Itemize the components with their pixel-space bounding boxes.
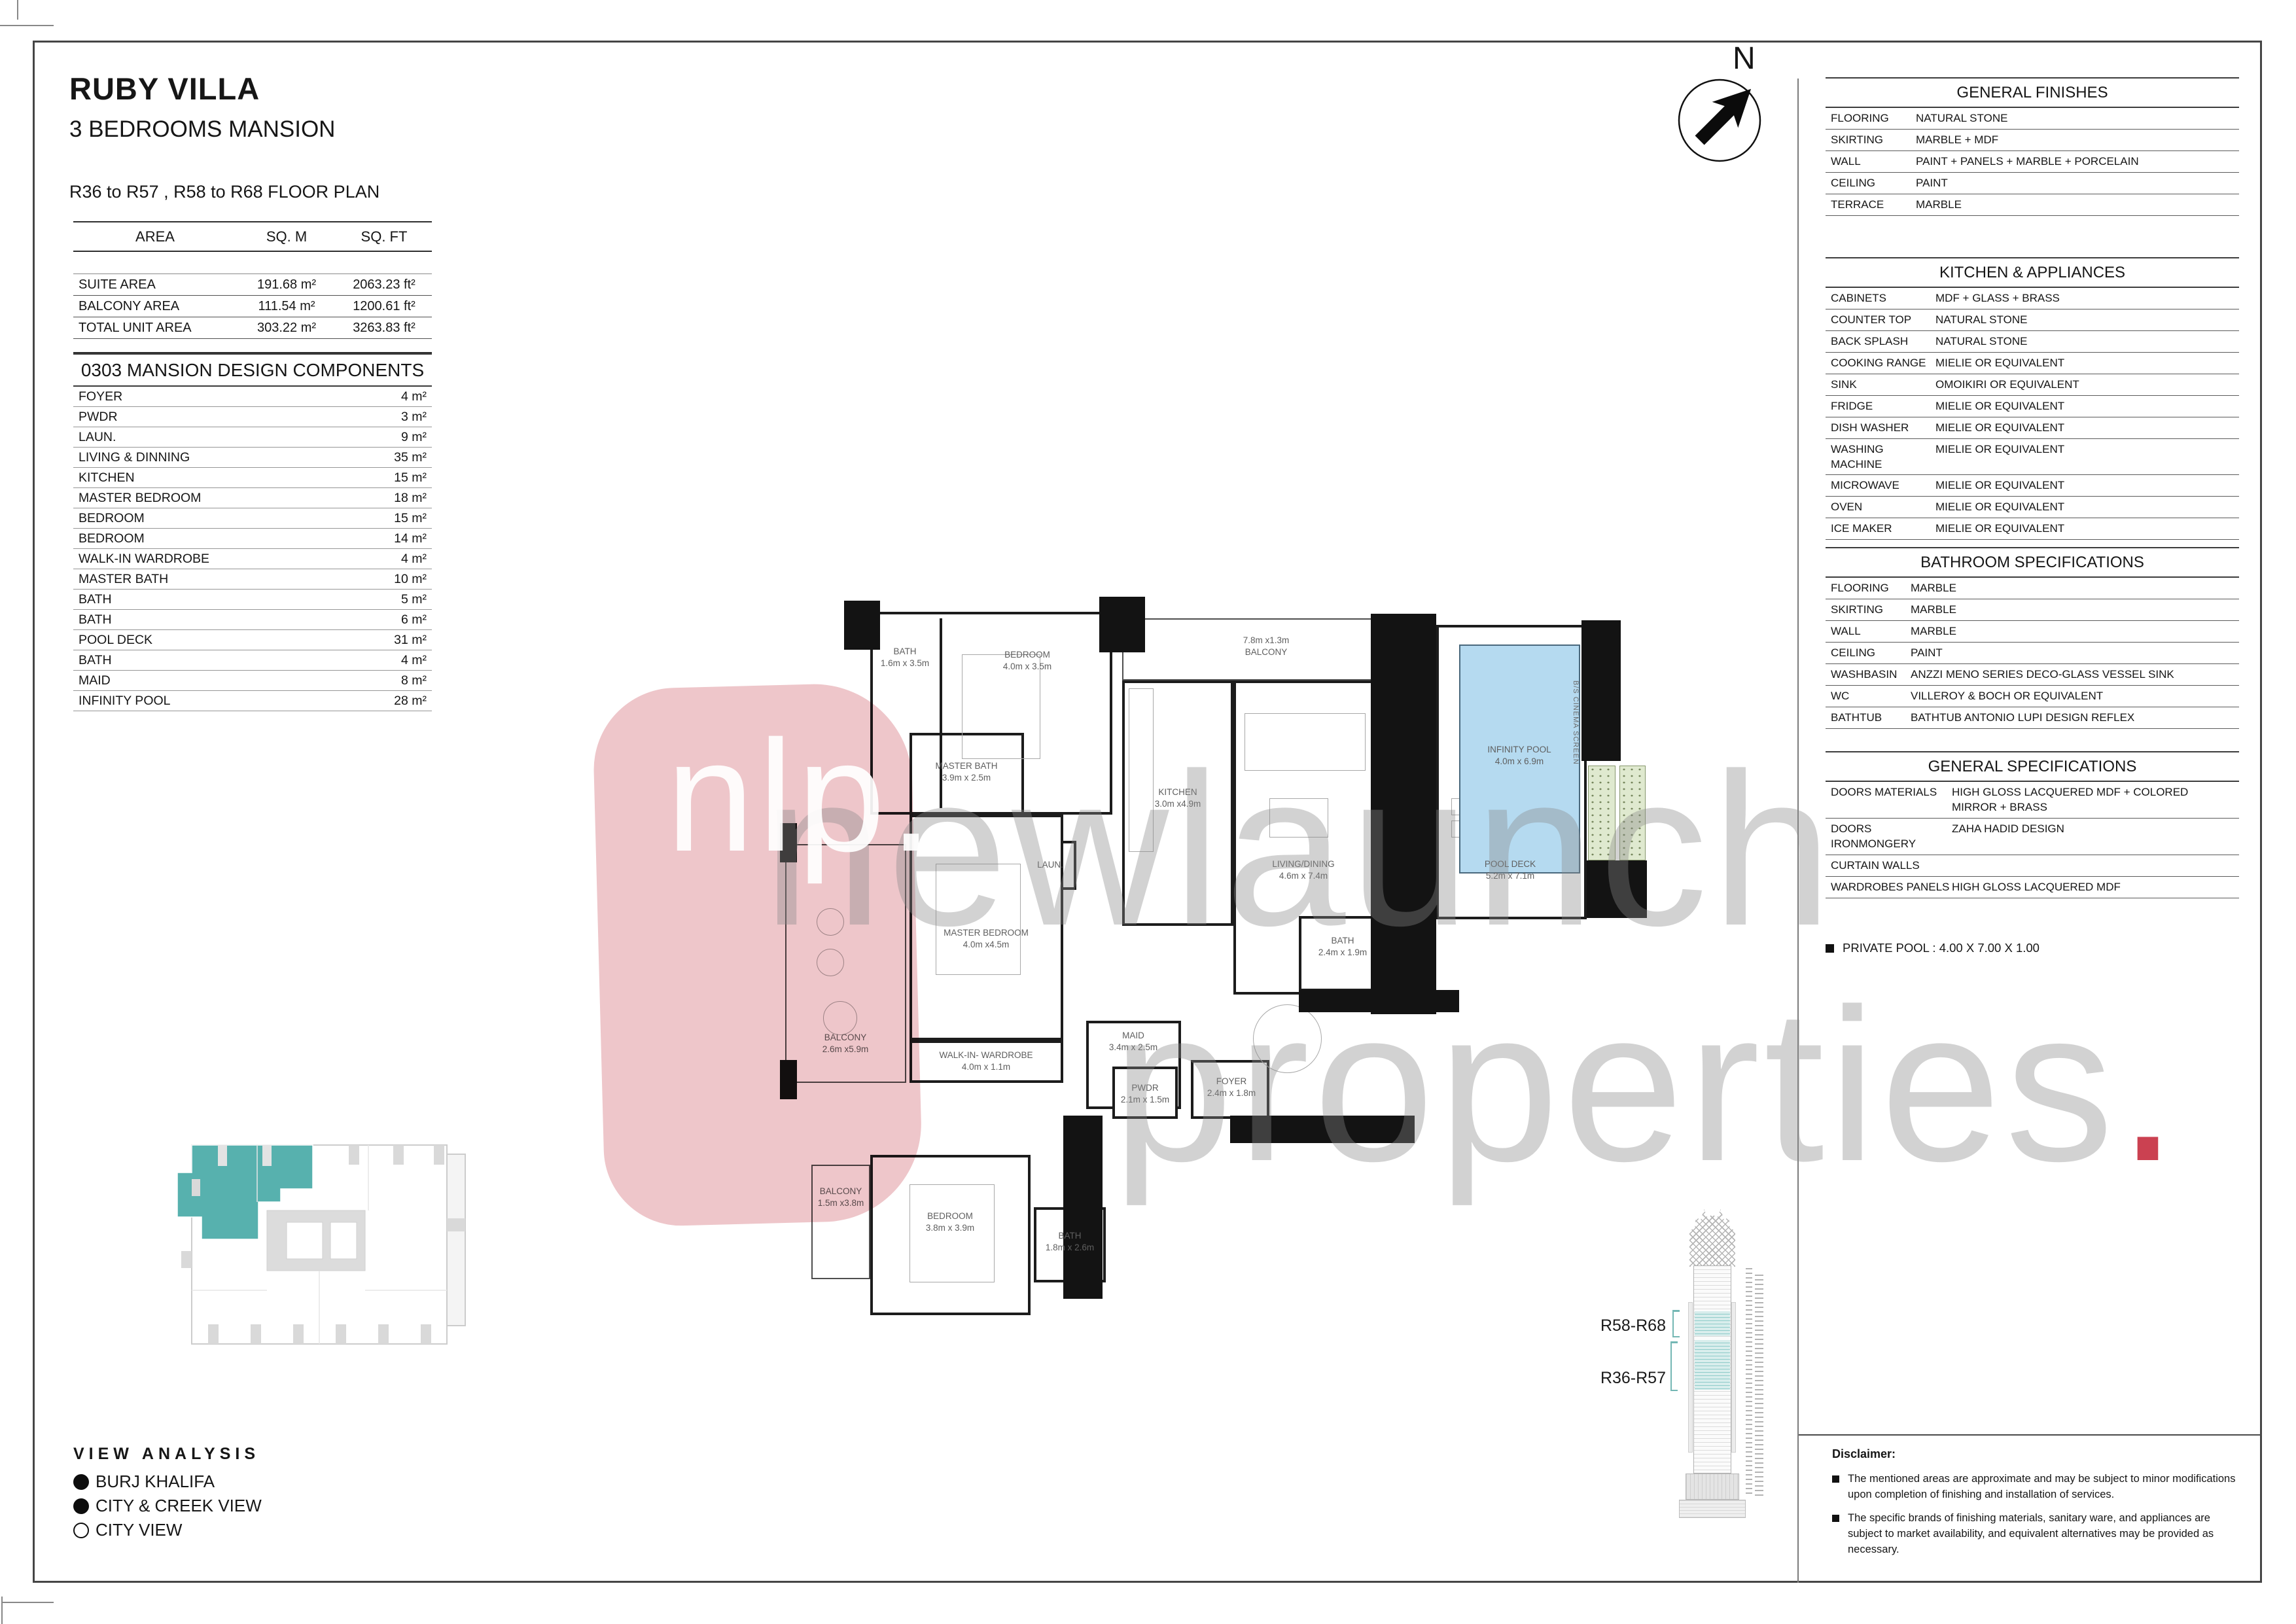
table-cell: WASHBASIN [1831, 667, 1911, 682]
table-cell: 3 m² [401, 410, 427, 425]
table-cell: LIVING & DINNING [79, 450, 394, 465]
disclaimer-text: The mentioned areas are approximate and … [1848, 1472, 2244, 1503]
components-table-row: FOYER4 m² [73, 387, 432, 407]
spec-table-row: WALLMARBLE [1826, 621, 2239, 643]
view-analysis-items: BURJ KHALIFACITY & CREEK VIEWCITY VIEW [73, 1472, 262, 1540]
components-table: 0303 MANSION DESIGN COMPONENTS FOYER4 m²… [73, 353, 432, 711]
table-cell: FLOORING [1831, 111, 1916, 126]
table-cell: WALL [1831, 624, 1911, 639]
table-cell: 191.68 m² [237, 277, 336, 292]
room-label-bedroom-bottom: BEDROOM3.8m x 3.9m [926, 1210, 974, 1234]
table-cell: NATURAL STONE [1935, 313, 2239, 328]
table-cell: CABINETS [1831, 291, 1935, 306]
table-cell: BEDROOM [79, 531, 394, 546]
tower-floor-index-column [1746, 1268, 1752, 1497]
table-cell: MIELIE OR EQUIVALENT [1935, 399, 2239, 414]
table-cell: CURTAIN WALLS [1831, 858, 1952, 874]
kitchen-appliances-table: KITCHEN & APPLIANCESCABINETSMDF + GLASS … [1826, 257, 2239, 540]
area-table-body: SUITE AREA191.68 m²2063.23 ft²BALCONY AR… [73, 274, 432, 339]
table-cell: MARBLE [1911, 581, 2239, 596]
disclaimer-item: The mentioned areas are approximate and … [1832, 1472, 2244, 1503]
table-cell: MARBLE [1911, 603, 2239, 618]
components-table-row: MASTER BATH10 m² [73, 569, 432, 590]
general-specifications-table: GENERAL SPECIFICATIONSDOORS MATERIALSHIG… [1826, 751, 2239, 898]
tower-wing [1688, 1302, 1693, 1453]
view-analysis: VIEW ANALYSIS BURJ KHALIFACITY & CREEK V… [73, 1445, 262, 1544]
spec-table-title: BATHROOM SPECIFICATIONS [1826, 547, 2239, 578]
table-cell: MDF + GLASS + BRASS [1935, 291, 2239, 306]
components-table-row: INFINITY POOL28 m² [73, 691, 432, 711]
spec-table-row: WASHBASINANZZI MENO SERIES DECO-GLASS VE… [1826, 664, 2239, 686]
open-circle-icon [73, 1523, 89, 1538]
wall-block [1063, 1116, 1103, 1299]
table-cell: ZAHA HADID DESIGN [1952, 822, 2239, 837]
table-cell: 5 m² [401, 592, 427, 607]
spec-table-row: OVENMIELIE OR EQUIVALENT [1826, 497, 2239, 518]
table-cell: MARBLE + MDF [1916, 133, 2239, 148]
spec-table-row: FRIDGEMIELIE OR EQUIVALENT [1826, 396, 2239, 417]
components-table-row: MASTER BEDROOM18 m² [73, 488, 432, 508]
table-cell: BATHTUB ANTONIO LUPI DESIGN REFLEX [1911, 711, 2239, 726]
view-analysis-item: CITY VIEW [73, 1520, 262, 1540]
components-table-row: BATH4 m² [73, 650, 432, 671]
area-table: AREA SQ. M SQ. FT SUITE AREA191.68 m²206… [73, 221, 432, 353]
spec-table-row: CABINETSMDF + GLASS + BRASS [1826, 288, 2239, 309]
disclaimer-title: Disclaimer: [1832, 1447, 2244, 1461]
highlight-band-upper [1695, 1311, 1730, 1336]
table-cell: PAINT [1911, 646, 2239, 661]
table-cell: COUNTER TOP [1831, 313, 1935, 328]
square-bullet-icon [1832, 1515, 1839, 1522]
table-cell: 31 m² [394, 633, 427, 648]
components-table-row: MAID8 m² [73, 671, 432, 691]
room-label-bath-top: BATH1.6m x 3.5m [881, 646, 929, 669]
spec-table-title: GENERAL SPECIFICATIONS [1826, 751, 2239, 782]
spec-table-row: WALLPAINT + PANELS + MARBLE + PORCELAIN [1826, 151, 2239, 173]
components-table-row: KITCHEN15 m² [73, 468, 432, 488]
spec-table-row: TERRACEMARBLE [1826, 194, 2239, 216]
table-cell: 8 m² [401, 673, 427, 688]
spec-table-row: DOORS MATERIALSHIGH GLOSS LACQUERED MDF … [1826, 782, 2239, 819]
table-cell: NATURAL STONE [1916, 111, 2239, 126]
table-cell: MIELIE OR EQUIVALENT [1935, 521, 2239, 537]
crop-mark [1, 1602, 54, 1603]
table-cell: DISH WASHER [1831, 421, 1935, 436]
table-cell: SINK [1831, 378, 1935, 393]
spec-table-row: FLOORINGNATURAL STONE [1826, 108, 2239, 130]
spec-table-row: WCVILLEROY & BOCH OR EQUIVALENT [1826, 686, 2239, 707]
north-arrow-icon [1676, 73, 1768, 165]
disclaimer-items: The mentioned areas are approximate and … [1832, 1472, 2244, 1558]
spec-table-row: CEILINGPAINT [1826, 643, 2239, 664]
tower-podium [1679, 1500, 1746, 1518]
table-cell: WASHING MACHINE [1831, 442, 1935, 472]
components-table-row: BATH5 m² [73, 590, 432, 610]
col-sqft: SQ. FT [336, 228, 432, 245]
components-table-row: LAUN.9 m² [73, 427, 432, 448]
components-table-row: PWDR3 m² [73, 407, 432, 427]
page-title: RUBY VILLA [69, 71, 260, 107]
table-cell: OVEN [1831, 500, 1935, 515]
components-table-row: BEDROOM15 m² [73, 508, 432, 529]
table-cell: 3263.83 ft² [336, 321, 432, 336]
table-cell: BALCONY AREA [73, 299, 237, 314]
table-cell: PWDR [79, 410, 401, 425]
spec-table-row: SINKOMOIKIRI OR EQUIVALENT [1826, 374, 2239, 396]
col-sqm: SQ. M [237, 228, 336, 245]
table-cell: ANZZI MENO SERIES DECO-GLASS VESSEL SINK [1911, 667, 2239, 682]
table-cell: 35 m² [394, 450, 427, 465]
tower-base [1686, 1474, 1739, 1500]
spec-table-row: ICE MAKERMIELIE OR EQUIVALENT [1826, 518, 2239, 540]
table-cell: 4 m² [401, 552, 427, 567]
components-table-row: BATH6 m² [73, 610, 432, 630]
table-cell: SKIRTING [1831, 603, 1911, 618]
filled-circle-icon [73, 1498, 89, 1514]
table-cell: CEILING [1831, 646, 1911, 661]
table-cell: MIELIE OR EQUIVALENT [1935, 356, 2239, 371]
table-cell: BATH [79, 612, 401, 627]
components-table-row: WALK-IN WARDROBE4 m² [73, 549, 432, 569]
table-cell: MIELIE OR EQUIVALENT [1935, 500, 2239, 515]
area-table-row: SUITE AREA191.68 m²2063.23 ft² [73, 274, 432, 296]
table-cell: TOTAL UNIT AREA [73, 321, 237, 336]
watermark-line2: properties. [1112, 961, 2182, 1210]
wall-block [1099, 597, 1145, 652]
table-cell: PAINT + PANELS + MARBLE + PORCELAIN [1916, 154, 2239, 169]
table-cell: MIELIE OR EQUIVALENT [1935, 421, 2239, 436]
floor-range-line: R36 to R57 , R58 to R68 FLOOR PLAN [69, 182, 380, 202]
crop-mark [0, 25, 54, 26]
watermark-logo: nlp. [666, 705, 937, 887]
spec-table-row: SKIRTINGMARBLE [1826, 599, 2239, 621]
spec-table-title: KITCHEN & APPLIANCES [1826, 257, 2239, 288]
table-cell: COOKING RANGE [1831, 356, 1935, 371]
view-analysis-item: BURJ KHALIFA [73, 1472, 262, 1492]
bracket-lower [1670, 1341, 1672, 1391]
disclaimer: Disclaimer: The mentioned areas are appr… [1832, 1447, 2244, 1566]
col-area: AREA [73, 228, 237, 245]
table-cell: WALL [1831, 154, 1916, 169]
highlight-band-lower [1695, 1340, 1730, 1390]
floor-plan-brochure-page: { "header": { "title": "RUBY VILLA", "su… [0, 0, 2296, 1624]
table-cell: KITCHEN [79, 470, 394, 485]
spec-table-row: CEILINGPAINT [1826, 173, 2239, 194]
spec-table-row: MICROWAVEMIELIE OR EQUIVALENT [1826, 475, 2239, 497]
view-analysis-label: CITY & CREEK VIEW [96, 1496, 262, 1516]
spec-table-row: COUNTER TOPNATURAL STONE [1826, 309, 2239, 331]
table-cell: FRIDGE [1831, 399, 1935, 414]
table-cell: MAID [79, 673, 401, 688]
table-cell: 4 m² [401, 389, 427, 404]
table-cell: TERRACE [1831, 198, 1916, 213]
area-table-spacer [73, 252, 432, 274]
table-cell: 15 m² [394, 511, 427, 526]
components-table-row: POOL DECK31 m² [73, 630, 432, 650]
spec-table-row: CURTAIN WALLS [1826, 855, 2239, 877]
table-cell: MARBLE [1916, 198, 2239, 213]
spec-table-row: COOKING RANGEMIELIE OR EQUIVALENT [1826, 353, 2239, 374]
table-cell: INFINITY POOL [79, 694, 394, 709]
table-cell: MASTER BATH [79, 572, 394, 587]
table-cell: BEDROOM [79, 511, 394, 526]
tower-label-lower: R36-R57 [1594, 1369, 1666, 1388]
table-cell: 2063.23 ft² [336, 277, 432, 292]
spec-table-row: WARDROBES PANELSHIGH GLOSS LACQUERED MDF [1826, 877, 2239, 898]
components-table-row: BEDROOM14 m² [73, 529, 432, 549]
room-label-wardrobe: WALK-IN- WARDROBE4.0m x 1.1m [939, 1050, 1033, 1073]
view-analysis-label: CITY VIEW [96, 1520, 262, 1540]
spec-table-row: BACK SPLASHNATURAL STONE [1826, 331, 2239, 353]
spec-table-row: BATHTUBBATHTUB ANTONIO LUPI DESIGN REFLE… [1826, 707, 2239, 729]
table-cell: 6 m² [401, 612, 427, 627]
table-cell: 111.54 m² [237, 299, 336, 314]
table-cell: ICE MAKER [1831, 521, 1935, 537]
private-pool-note: PRIVATE POOL : 4.00 X 7.00 X 1.00 [1826, 941, 2166, 955]
table-cell: POOL DECK [79, 633, 394, 648]
components-title: 0303 MANSION DESIGN COMPONENTS [73, 355, 432, 387]
table-cell: HIGH GLOSS LACQUERED MDF [1952, 880, 2239, 895]
general-finishes-table: GENERAL FINISHESFLOORINGNATURAL STONESKI… [1826, 77, 2239, 216]
table-cell: 10 m² [394, 572, 427, 587]
spec-table-row: DISH WASHERMIELIE OR EQUIVALENT [1826, 417, 2239, 439]
table-cell: FOYER [79, 389, 401, 404]
bracket-upper [1672, 1310, 1674, 1337]
room-label-balcony-top: 7.8m x1.3mBALCONY [1243, 635, 1290, 658]
table-cell: MIELIE OR EQUIVALENT [1935, 442, 2239, 457]
spec-table-title: GENERAL FINISHES [1826, 77, 2239, 108]
table-cell: MICROWAVE [1831, 478, 1935, 493]
table-cell: NATURAL STONE [1935, 334, 2239, 349]
table-cell: WC [1831, 689, 1911, 704]
tower-label-upper: R58-R68 [1594, 1316, 1666, 1335]
keyplan [152, 1140, 503, 1382]
table-cell: 15 m² [394, 470, 427, 485]
area-table-row: TOTAL UNIT AREA303.22 m²3263.83 ft² [73, 317, 432, 339]
disclaimer-text: The specific brands of finishing materia… [1848, 1511, 2244, 1558]
view-analysis-label: BURJ KHALIFA [96, 1472, 262, 1492]
table-cell: BACK SPLASH [1831, 334, 1935, 349]
table-cell: MARBLE [1911, 624, 2239, 639]
table-cell: WARDROBES PANELS [1831, 880, 1952, 895]
tower-floor-index-column [1755, 1275, 1763, 1497]
table-cell: BATH [79, 653, 401, 668]
crop-mark [1, 1597, 3, 1624]
table-cell: 1200.61 ft² [336, 299, 432, 314]
table-cell: OMOIKIRI OR EQUIVALENT [1935, 378, 2239, 393]
spec-table-row: DOORS IRONMONGERYZAHA HADID DESIGN [1826, 819, 2239, 855]
bathroom-specifications-table: BATHROOM SPECIFICATIONSFLOORINGMARBLESKI… [1826, 547, 2239, 729]
table-cell: LAUN. [79, 430, 401, 445]
table-cell: SKIRTING [1831, 133, 1916, 148]
table-cell: 9 m² [401, 430, 427, 445]
table-cell: WALK-IN WARDROBE [79, 552, 401, 567]
table-cell: MASTER BEDROOM [79, 491, 394, 506]
table-cell: VILLEROY & BOCH OR EQUIVALENT [1911, 689, 2239, 704]
filled-circle-icon [73, 1474, 89, 1490]
disclaimer-item: The specific brands of finishing materia… [1832, 1511, 2244, 1558]
table-cell: DOORS IRONMONGERY [1831, 822, 1952, 852]
table-cell: HIGH GLOSS LACQUERED MDF + COLORED MIRRO… [1952, 785, 2239, 815]
private-pool-note-text: PRIVATE POOL : 4.00 X 7.00 X 1.00 [1843, 941, 2166, 955]
table-cell: MIELIE OR EQUIVALENT [1935, 478, 2239, 493]
view-analysis-item: CITY & CREEK VIEW [73, 1496, 262, 1516]
table-cell: BATH [79, 592, 401, 607]
tower-crown-lattice [1689, 1209, 1735, 1267]
table-cell: 28 m² [394, 694, 427, 709]
watermark-red-dot: . [2117, 964, 2181, 1207]
page-subtitle: 3 BEDROOMS MANSION [69, 116, 335, 143]
view-analysis-title: VIEW ANALYSIS [73, 1445, 262, 1464]
components-table-body: FOYER4 m²PWDR3 m²LAUN.9 m²LIVING & DINNI… [73, 387, 432, 711]
table-cell: 4 m² [401, 653, 427, 668]
disclaimer-top-line [1799, 1434, 2262, 1436]
room-label-bedroom-top: BEDROOM4.0m x 3.5m [1003, 649, 1051, 673]
table-cell: PAINT [1916, 176, 2239, 191]
table-cell: DOORS MATERIALS [1831, 785, 1952, 800]
spec-table-row: SKIRTINGMARBLE + MDF [1826, 130, 2239, 151]
area-table-row: BALCONY AREA111.54 m²1200.61 ft² [73, 296, 432, 317]
wall-block [844, 601, 880, 650]
north-label: N [1733, 41, 1756, 77]
table-cell: BATHTUB [1831, 711, 1911, 726]
table-cell: CEILING [1831, 176, 1916, 191]
table-cell: 303.22 m² [237, 321, 336, 336]
table-cell: 14 m² [394, 531, 427, 546]
tower-wing [1731, 1302, 1736, 1453]
spec-table-row: WASHING MACHINEMIELIE OR EQUIVALENT [1826, 439, 2239, 476]
room-label-bath-bottom: BATH1.8m x 2.6m [1046, 1230, 1094, 1254]
components-table-row: LIVING & DINNING35 m² [73, 448, 432, 468]
crop-mark [17, 0, 18, 20]
table-cell: FLOORING [1831, 581, 1911, 596]
area-table-end [73, 339, 432, 353]
table-cell: 18 m² [394, 491, 427, 506]
table-cell: SUITE AREA [73, 277, 237, 292]
spec-table-row: FLOORINGMARBLE [1826, 578, 2239, 599]
square-bullet-icon [1832, 1475, 1839, 1483]
area-table-header: AREA SQ. M SQ. FT [73, 221, 432, 252]
